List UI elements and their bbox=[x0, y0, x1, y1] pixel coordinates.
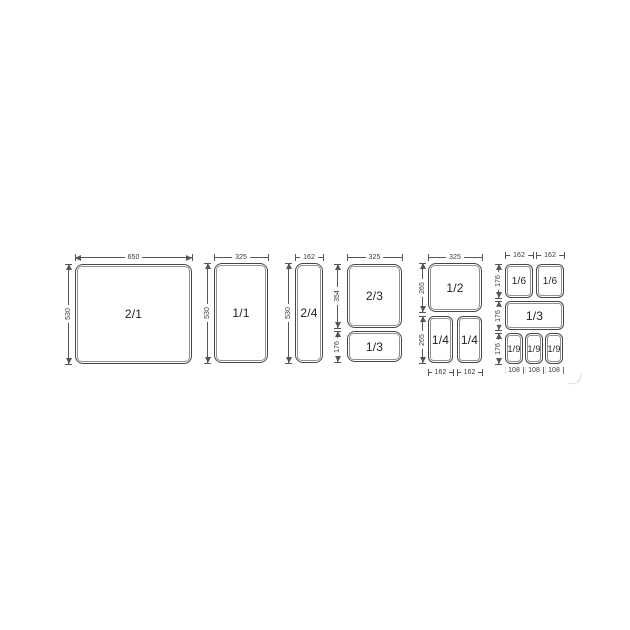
dim-height-1-9: 176 bbox=[498, 333, 499, 364]
tick bbox=[533, 252, 534, 259]
dim-label: 162 bbox=[461, 369, 479, 377]
dim-width-2-1: 650 bbox=[75, 257, 192, 258]
tick bbox=[536, 252, 537, 259]
arrow-down-icon bbox=[335, 356, 341, 362]
arrow-down-icon bbox=[66, 358, 72, 364]
dim-width-1-6: 162 bbox=[505, 255, 533, 256]
dim-label: 325 bbox=[366, 254, 384, 262]
dim-label: 108 bbox=[525, 367, 543, 375]
dim-label: 265 bbox=[419, 279, 427, 297]
dim-height-2-4: 530 bbox=[288, 263, 289, 363]
dim-height-1-4: 265 bbox=[422, 316, 423, 363]
arrow-down-icon bbox=[205, 357, 211, 363]
tick bbox=[428, 254, 429, 261]
arrow-down-icon bbox=[496, 358, 502, 364]
pan-label: 1/4 bbox=[461, 333, 478, 347]
pan-1-3-wide: 1/3 bbox=[505, 301, 564, 330]
dim-label: 354 bbox=[334, 287, 342, 305]
dim-width-1-2: 325 bbox=[428, 257, 482, 258]
dim-label: 325 bbox=[446, 254, 464, 262]
pan-1-9: 1/9 bbox=[525, 333, 543, 364]
arrow-down-icon bbox=[420, 357, 426, 363]
tick bbox=[214, 254, 215, 261]
pan-1-4: 1/4 bbox=[457, 316, 482, 363]
dim-height-1-6: 176 bbox=[498, 264, 499, 298]
tick bbox=[453, 369, 454, 376]
dim-label: 176 bbox=[495, 307, 503, 325]
arrow-up-icon bbox=[205, 263, 211, 269]
arrow-left-icon bbox=[75, 255, 81, 261]
tick bbox=[428, 369, 429, 376]
dim-label: 176 bbox=[495, 340, 503, 358]
tick bbox=[482, 369, 483, 376]
tick bbox=[564, 252, 565, 259]
arrow-up-icon bbox=[496, 333, 502, 339]
dim-label: 108 bbox=[545, 367, 563, 375]
pan-label: 1/4 bbox=[432, 333, 449, 347]
pan-label: 1/3 bbox=[526, 309, 543, 323]
dim-width-1-4: 162 bbox=[428, 372, 453, 373]
arrow-up-icon bbox=[66, 264, 72, 270]
pan-1-6: 1/6 bbox=[505, 264, 533, 298]
gastronorm-size-diagram: 650 530 2/1 325 530 1/1 162 530 2/4 325 bbox=[0, 0, 630, 630]
pan-1-9: 1/9 bbox=[545, 333, 563, 364]
pan-label: 1/6 bbox=[543, 276, 558, 287]
pan-label: 2/1 bbox=[125, 307, 142, 321]
dim-label: 650 bbox=[125, 254, 143, 262]
pan-1-6: 1/6 bbox=[536, 264, 564, 298]
arrow-down-icon bbox=[496, 292, 502, 298]
pan-1-9: 1/9 bbox=[505, 333, 523, 364]
tick bbox=[505, 252, 506, 259]
arrow-up-icon bbox=[286, 263, 292, 269]
pan-label: 1/9 bbox=[527, 344, 540, 354]
tick bbox=[482, 254, 483, 261]
pan-label: 1/6 bbox=[512, 276, 527, 287]
pan-1-3: 1/3 bbox=[347, 331, 402, 362]
pan-label: 1/9 bbox=[507, 344, 520, 354]
dim-label: 325 bbox=[232, 254, 250, 262]
tick bbox=[295, 254, 296, 261]
arrow-up-icon bbox=[496, 301, 502, 307]
dim-label: 265 bbox=[419, 331, 427, 349]
dim-height-1-3-wide: 176 bbox=[498, 301, 499, 330]
tick bbox=[457, 369, 458, 376]
tick bbox=[268, 254, 269, 261]
arrow-down-icon bbox=[286, 357, 292, 363]
arrow-down-icon bbox=[335, 322, 341, 328]
tick bbox=[323, 254, 324, 261]
dim-label: 530 bbox=[204, 304, 212, 322]
dim-width-1-9: 108 bbox=[505, 370, 523, 371]
pan-1-1: 1/1 bbox=[214, 263, 268, 363]
dim-width-1-9: 108 bbox=[525, 370, 543, 371]
pan-label: 1/2 bbox=[446, 281, 463, 295]
arrow-up-icon bbox=[335, 331, 341, 337]
stray-mark bbox=[568, 371, 582, 386]
arrow-down-icon bbox=[420, 306, 426, 312]
arrow-up-icon bbox=[496, 264, 502, 270]
pan-2-4: 2/4 bbox=[295, 263, 323, 363]
dim-label: 162 bbox=[300, 254, 318, 262]
pan-label: 2/3 bbox=[366, 289, 383, 303]
dim-label: 530 bbox=[285, 304, 293, 322]
dim-width-1-9: 108 bbox=[545, 370, 563, 371]
dim-width-2-4: 162 bbox=[295, 257, 323, 258]
dim-label: 176 bbox=[495, 272, 503, 290]
dim-width-2-3: 325 bbox=[347, 257, 402, 258]
pan-2-3: 2/3 bbox=[347, 264, 402, 328]
pan-label: 1/1 bbox=[232, 306, 249, 320]
dim-label: 162 bbox=[541, 252, 559, 260]
tick bbox=[402, 254, 403, 261]
pan-label: 2/4 bbox=[300, 306, 317, 320]
dim-width-1-6: 162 bbox=[536, 255, 564, 256]
arrow-up-icon bbox=[420, 263, 426, 269]
dim-width-1-4: 162 bbox=[457, 372, 482, 373]
dim-label: 162 bbox=[510, 252, 528, 260]
dim-label: 530 bbox=[65, 305, 73, 323]
arrow-down-icon bbox=[496, 324, 502, 330]
tick bbox=[347, 254, 348, 261]
arrow-up-icon bbox=[335, 264, 341, 270]
pan-label: 1/3 bbox=[366, 340, 383, 354]
dim-height-2-3: 354 bbox=[337, 264, 338, 328]
arrow-right-icon bbox=[186, 255, 192, 261]
dim-label: 176 bbox=[334, 338, 342, 356]
dim-label: 162 bbox=[432, 369, 450, 377]
dim-height-2-1: 530 bbox=[68, 264, 69, 364]
dim-width-1-1: 325 bbox=[214, 257, 268, 258]
pan-1-4: 1/4 bbox=[428, 316, 453, 363]
pan-1-2: 1/2 bbox=[428, 263, 482, 312]
dim-height-1-2: 265 bbox=[422, 263, 423, 312]
dim-height-1-1: 530 bbox=[207, 263, 208, 363]
arrow-up-icon bbox=[420, 316, 426, 322]
dim-height-1-3: 176 bbox=[337, 331, 338, 362]
pan-label: 1/9 bbox=[547, 344, 560, 354]
dim-label: 108 bbox=[505, 367, 523, 375]
pan-2-1: 2/1 bbox=[75, 264, 192, 364]
